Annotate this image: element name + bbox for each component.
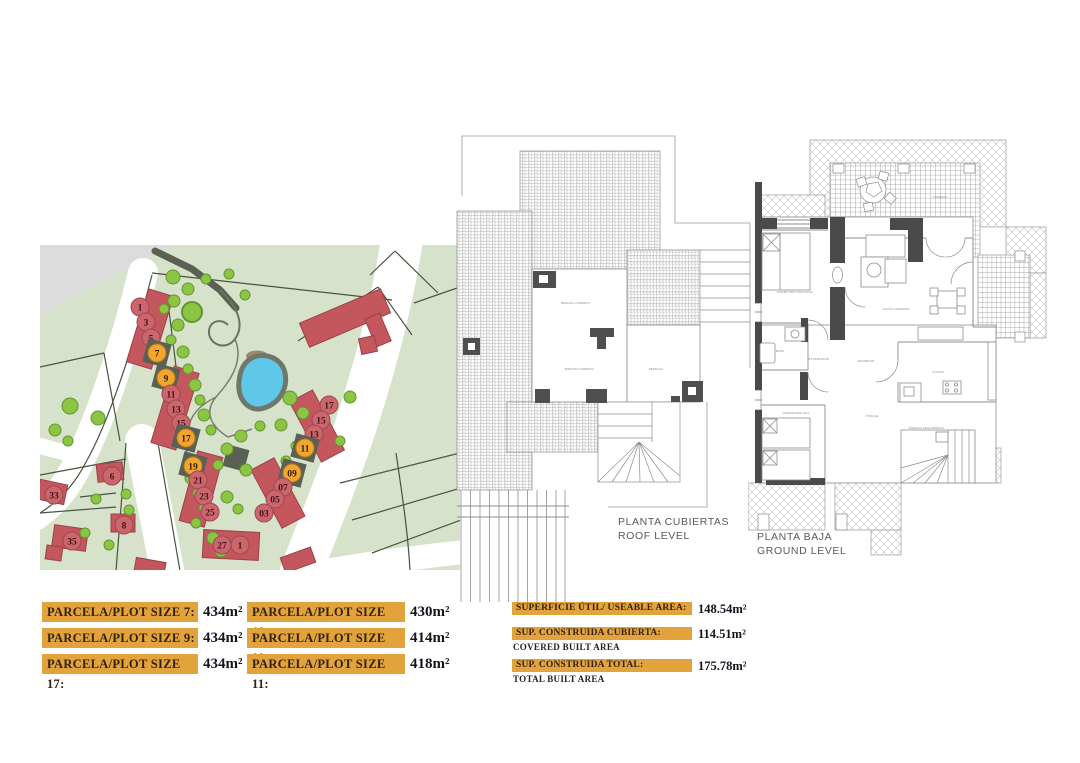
plot-size-value: 434m² (203, 604, 243, 621)
site-map: 1357911131517192123252711715131109070503… (40, 245, 460, 570)
svg-text:PÉRGOLA: PÉRGOLA (649, 366, 664, 371)
svg-text:21: 21 (193, 476, 203, 486)
svg-text:SALÓN COMEDOR: SALÓN COMEDOR (883, 306, 911, 311)
ground-plan-title-es: PLANTA BAJA (757, 531, 846, 545)
built-area-row: SUP. CONSTRUIDA TOTAL: TOTAL BUILT AREA … (512, 659, 747, 684)
plot-size-table-left: PARCELA/PLOT SIZE 7: 434m² PARCELA/PLOT … (42, 602, 243, 680)
svg-text:TERRAZA CUBIERTA: TERRAZA CUBIERTA (560, 301, 590, 305)
svg-text:COCINA: COCINA (932, 370, 944, 374)
svg-text:35: 35 (67, 537, 77, 547)
ground-plan-title-en: GROUND LEVEL (757, 545, 846, 559)
svg-text:15: 15 (316, 416, 326, 426)
svg-text:6: 6 (110, 472, 115, 482)
map-pond (239, 351, 286, 409)
ground-plan-drawing: DORMITORIO PRINCIPALBAÑODISTRIBUIDORRECI… (748, 120, 1058, 570)
svg-text:27: 27 (217, 541, 227, 551)
brochure-page: 1357911131517192123252711715131109070503… (0, 0, 1080, 763)
plot-size-value: 414m² (410, 630, 450, 647)
built-area-value: 148.54m² (698, 602, 747, 617)
svg-text:RECIBIDOR: RECIBIDOR (858, 359, 876, 363)
plot-size-row: PARCELA/PLOT SIZE 7: 434m² (42, 602, 243, 622)
svg-text:DORMITORIO PRINCIPAL: DORMITORIO PRINCIPAL (777, 290, 813, 294)
ground-plan-title: PLANTA BAJA GROUND LEVEL (757, 531, 846, 558)
ground-wall-niche (833, 267, 843, 283)
svg-text:BAÑO: BAÑO (776, 348, 785, 353)
svg-text:7: 7 (155, 349, 160, 359)
roof-stairs (598, 402, 680, 482)
svg-text:17: 17 (181, 434, 191, 444)
roof-plan-title: PLANTA CUBIERTAS ROOF LEVEL (618, 516, 729, 543)
svg-text:3: 3 (144, 318, 149, 328)
svg-text:11: 11 (167, 390, 176, 400)
plot-size-table-right: PARCELA/PLOT SIZE 19: 430m² PARCELA/PLOT… (247, 602, 450, 680)
built-area-label: SUP. CONSTRUIDA CUBIERTA: (512, 627, 692, 640)
svg-text:09: 09 (287, 469, 297, 479)
svg-text:DISTRIBUIDOR: DISTRIBUIDOR (807, 357, 829, 361)
plot-size-row: PARCELA/PLOT SIZE 17: 434m² (42, 654, 243, 674)
plot-size-label: PARCELA/PLOT SIZE 19: (247, 602, 405, 622)
plot-size-value: 418m² (410, 656, 450, 673)
plot-size-row: PARCELA/PLOT SIZE 11: 418m² (247, 654, 450, 674)
roof-plan-title-es: PLANTA CUBIERTAS (618, 516, 729, 530)
svg-text:11: 11 (301, 444, 310, 454)
plot-size-value: 434m² (203, 630, 243, 647)
roof-pergola-bottom (457, 490, 569, 602)
svg-text:03: 03 (259, 509, 269, 519)
built-area-label: SUPERFICIE ÚTIL/ USEABLE AREA: (512, 602, 692, 615)
svg-text:9: 9 (164, 374, 169, 384)
svg-text:23: 23 (199, 492, 209, 502)
built-area-value: 114.51m² (698, 627, 746, 652)
svg-text:TERRAZA CUBIERTA: TERRAZA CUBIERTA (564, 367, 594, 371)
svg-text:8: 8 (122, 521, 127, 531)
plot-size-value: 430m² (410, 604, 450, 621)
plot-size-label: PARCELA/PLOT SIZE 09: (247, 628, 405, 648)
built-area-value: 175.78m² (698, 659, 747, 684)
plot-size-label: PARCELA/PLOT SIZE 17: (42, 654, 198, 674)
built-area-sublabel: TOTAL BUILT AREA (512, 672, 692, 684)
svg-text:1: 1 (238, 541, 243, 551)
plot-size-row: PARCELA/PLOT SIZE 19: 430m² (247, 602, 450, 622)
roof-plan-title-en: ROOF LEVEL (618, 530, 729, 544)
roof-pergola-beams (700, 250, 750, 322)
svg-text:05: 05 (270, 495, 280, 505)
svg-text:33: 33 (49, 491, 59, 501)
svg-text:DORMITORIO DOS: DORMITORIO DOS (783, 411, 810, 415)
built-area-row: SUP. CONSTRUIDA CUBIERTA: COVERED BUILT … (512, 627, 747, 652)
svg-text:1: 1 (138, 303, 143, 313)
svg-text:TERRAZA: TERRAZA (933, 195, 947, 199)
svg-text:25: 25 (205, 508, 215, 518)
built-area-label: SUP. CONSTRUIDA TOTAL: (512, 659, 692, 672)
plot-size-row: PARCELA/PLOT SIZE 09: 414m² (247, 628, 450, 648)
svg-text:17: 17 (324, 401, 334, 411)
built-area-table: SUPERFICIE ÚTIL/ USEABLE AREA: 148.54m² … (512, 602, 747, 691)
built-area-row: SUPERFICIE ÚTIL/ USEABLE AREA: 148.54m² (512, 602, 747, 617)
built-area-sublabel: COVERED BUILT AREA (512, 640, 692, 652)
plot-size-label: PARCELA/PLOT SIZE 7: (42, 602, 198, 622)
svg-text:TERRAZA DESCUBIERTA: TERRAZA DESCUBIERTA (908, 426, 944, 430)
plot-size-row: PARCELA/PLOT SIZE 9: 434m² (42, 628, 243, 648)
plot-size-label: PARCELA/PLOT SIZE 11: (247, 654, 405, 674)
svg-text:PORCHE: PORCHE (866, 414, 879, 418)
plot-size-label: PARCELA/PLOT SIZE 9: (42, 628, 198, 648)
plot-size-value: 434m² (203, 656, 243, 673)
